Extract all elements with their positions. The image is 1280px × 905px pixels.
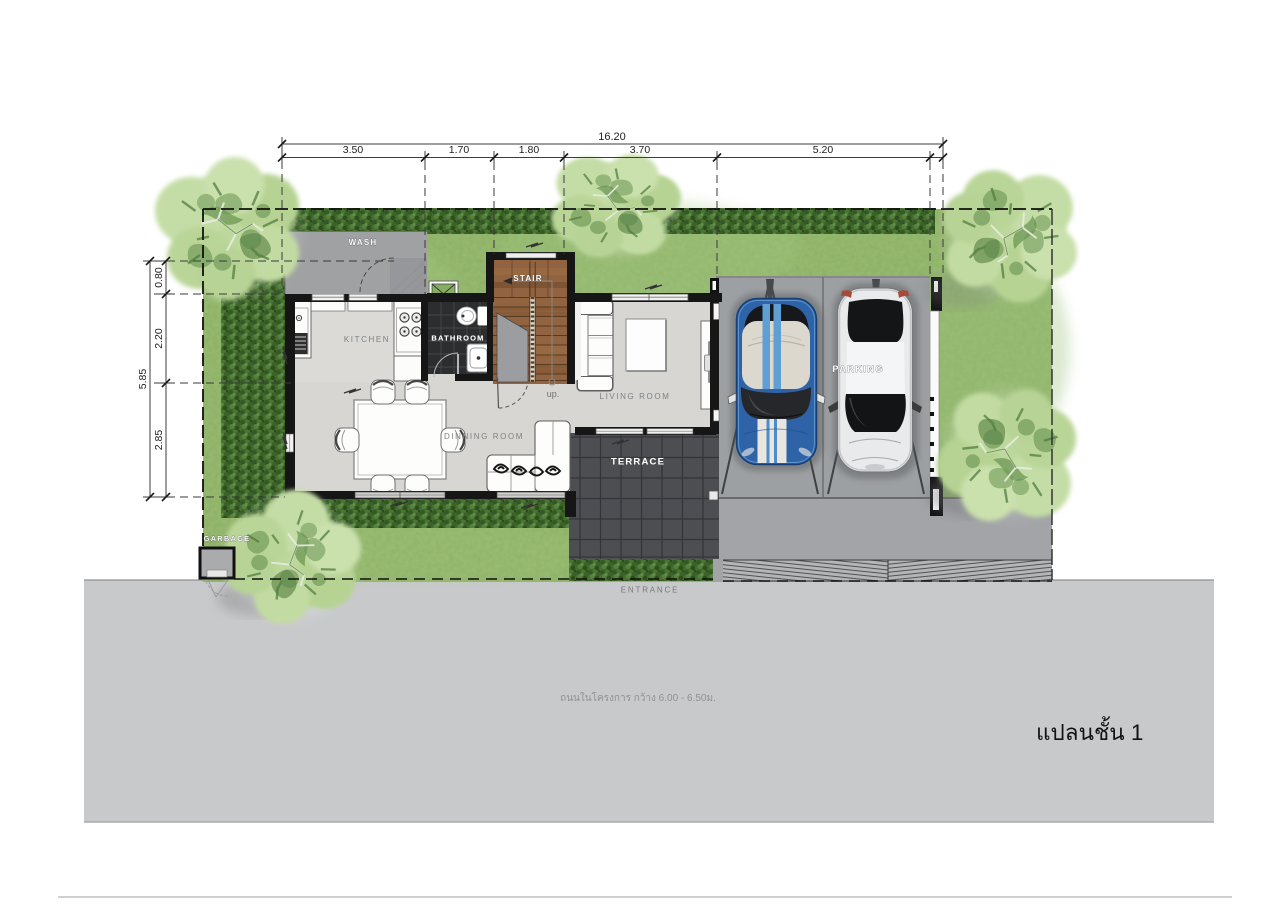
svg-text:0.80: 0.80 xyxy=(153,267,165,288)
svg-text:WASH: WASH xyxy=(349,238,378,247)
svg-text:LIVING ROOM: LIVING ROOM xyxy=(600,392,671,401)
svg-text:แปลนชั้น 1: แปลนชั้น 1 xyxy=(1036,716,1143,745)
svg-text:3.70: 3.70 xyxy=(630,144,651,156)
svg-text:STAIR: STAIR xyxy=(513,274,542,283)
svg-text:2.85: 2.85 xyxy=(153,430,165,451)
svg-text:ถนนในโครงการ กว้าง 6.00 - 6.50: ถนนในโครงการ กว้าง 6.00 - 6.50ม. xyxy=(560,691,716,704)
svg-text:up.: up. xyxy=(547,389,560,399)
svg-text:1.80: 1.80 xyxy=(519,144,540,156)
svg-text:ENTRANCE: ENTRANCE xyxy=(621,586,679,595)
svg-text:16.20: 16.20 xyxy=(598,131,626,143)
svg-text:2.20: 2.20 xyxy=(153,328,165,349)
svg-text:GARBAGE: GARBAGE xyxy=(204,534,251,543)
svg-text:1.70: 1.70 xyxy=(449,144,470,156)
svg-text:PARKING: PARKING xyxy=(832,364,884,375)
svg-text:TERRACE: TERRACE xyxy=(611,457,665,468)
svg-text:3.50: 3.50 xyxy=(343,144,364,156)
svg-text:5.20: 5.20 xyxy=(813,144,834,156)
svg-text:DINNING ROOM: DINNING ROOM xyxy=(444,432,524,441)
svg-text:5.85: 5.85 xyxy=(137,369,149,390)
svg-text:BATHROOM: BATHROOM xyxy=(431,334,484,343)
svg-text:KITCHEN: KITCHEN xyxy=(344,335,390,344)
